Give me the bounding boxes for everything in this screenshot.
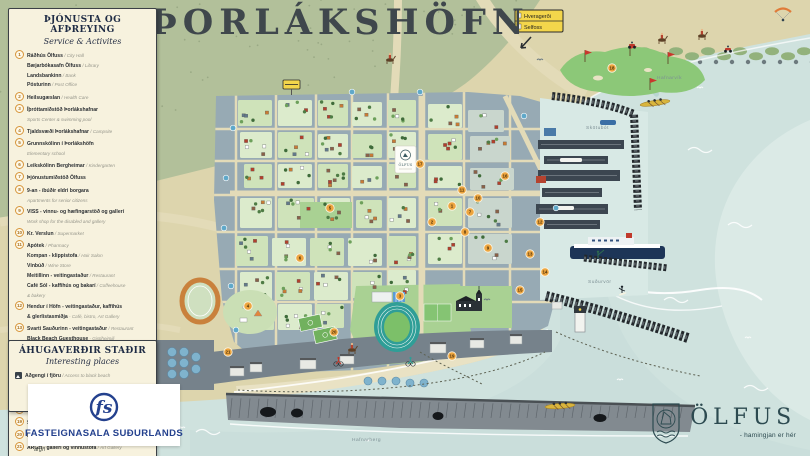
legend-number-badge: 8 xyxy=(15,185,24,194)
legend-text-segment: / Bank xyxy=(62,73,76,78)
number-marker: 6 xyxy=(296,254,304,262)
svg-text:10: 10 xyxy=(476,196,481,201)
legend-line: Sports Center & swimming pool xyxy=(27,114,150,123)
legend-line: Ráðhús Ölfuss / City Hall xyxy=(27,50,150,60)
info-marker xyxy=(228,283,234,289)
legend-number-badge: 21 xyxy=(15,442,24,451)
water-label: Skötubót xyxy=(586,125,609,131)
number-marker: 10 xyxy=(474,194,482,202)
legend-line: & bakery xyxy=(27,290,150,299)
water-label: Suðurvör xyxy=(588,278,611,285)
legend-text-segment: Kompan - klippistofa xyxy=(27,253,77,259)
legend-number-badge: 4 xyxy=(15,126,24,135)
fishing-boat-icon xyxy=(600,120,616,125)
legend-line: Aðgengi í fjöru / Access to black beach xyxy=(25,370,150,380)
legend-line: Elementary school xyxy=(27,148,150,157)
legend-line: Work shop for the disabled and gallery xyxy=(27,216,150,225)
legend-item: 6Leikskólinn Bergheimar / Kindergarten xyxy=(15,160,150,170)
legend-line: VISS - vinnu- og hæfingarstöð og gallerí xyxy=(27,206,150,216)
legend-text-segment: / Hair Salon xyxy=(77,253,102,258)
places-items: Aðgengi í fjöru / Access to black beach xyxy=(15,370,150,380)
legend-item-text: Leikskólinn Bergheimar / Kindergarten xyxy=(27,160,150,170)
legend-text-segment: / Supermarket xyxy=(54,231,84,236)
legend-item-text: Íþróttamiðstöð ÞorlákshafnarSports Cente… xyxy=(27,104,150,123)
svg-text:21: 21 xyxy=(226,350,231,355)
legend-line: Apótek / Pharmacy xyxy=(27,240,150,250)
places-header: ÁHUGAVERÐIR STAÐIR xyxy=(15,346,150,356)
place-item: Aðgengi í fjöru / Access to black beach xyxy=(15,370,150,380)
number-marker: 20 xyxy=(330,328,338,336)
legend-text-segment: / City Hall xyxy=(63,53,84,58)
legend-number-badge: 2 xyxy=(15,92,24,101)
legend-line: Bæjarbókasafn Ölfuss / Library xyxy=(27,60,150,70)
legend-text-segment: Pósturinn xyxy=(27,82,51,88)
legend-text-segment: Ráðhús Ölfuss xyxy=(27,53,63,59)
legend-text-segment: Leikskólinn Bergheimar xyxy=(27,163,85,169)
legend-text-segment: & glerlistasmiðja xyxy=(27,314,68,320)
legend-line: Vínbúð / Wine Store xyxy=(27,260,150,270)
number-marker: 5 xyxy=(326,204,334,212)
legend-item: 10Kr. Verslun / Supermarket xyxy=(15,228,150,238)
legend-text-segment: Íþróttamiðstöð Þorlákshafnar xyxy=(27,107,98,113)
legend-text-segment: / Access to black beach xyxy=(61,373,110,378)
number-marker: 2 xyxy=(428,218,436,226)
legend-number-badge: 3 xyxy=(15,104,24,113)
svg-text:ÖLFUS: ÖLFUS xyxy=(398,162,412,167)
legend-text-segment: Þjónustumiðstöð Ölfuss xyxy=(27,175,86,181)
info-marker xyxy=(553,205,559,211)
legend-text-segment: Hendur í Höfn - veitingastaður, kaffihús xyxy=(27,304,122,310)
places-subheader: Interesting places xyxy=(15,357,150,366)
number-marker: 3 xyxy=(396,292,404,300)
legend-item-text: VISS - vinnu- og hæfingarstöð og gallerí… xyxy=(27,206,150,225)
svg-text:16: 16 xyxy=(503,174,508,179)
town-map-poster: Hveragerði Selfoss ÖLFUS 123456789101112… xyxy=(0,0,810,456)
svg-text:14: 14 xyxy=(543,270,548,275)
legend-number-badge: 12 xyxy=(15,301,24,310)
number-marker: 21 xyxy=(224,348,232,356)
legend-line: Tjaldsvæði Þorlákshafnar / Campsite xyxy=(27,126,150,136)
legend-item: 89-an - íbúðir eldri borgaraApartments f… xyxy=(15,185,150,204)
page-title: ÞORLÁKSHÖFN xyxy=(150,2,530,43)
legend-text-segment: Grunnskólinn í Þorlákshöfn xyxy=(27,141,94,147)
legend-item: 2Heilsugæslan / Health Care xyxy=(15,92,150,102)
legend-item: 1Ráðhús Ölfuss / City HallBæjarbókasafn … xyxy=(15,50,150,90)
fasteignasala-logo: fs FASTEIGNASALA SUÐURLANDS xyxy=(28,384,180,446)
legend-line: Landsbankinn / Bank xyxy=(27,70,150,80)
info-marker xyxy=(223,175,229,181)
legend-item-text: Hendur í Höfn - veitingastaður, kaffihús… xyxy=(27,301,150,321)
legend-text-segment: / Library xyxy=(81,63,99,68)
info-marker xyxy=(230,125,236,131)
info-marker xyxy=(221,225,227,231)
legend-line: Grunnskólinn í Þorlákshöfn xyxy=(27,138,150,148)
legend-text-segment: Elementary school xyxy=(27,151,65,156)
legend-line: Kompan - klippistofa / Hair Salon xyxy=(27,250,150,260)
legend-line: Íþróttamiðstöð Þorlákshafnar xyxy=(27,104,150,114)
legend-text-segment: / Wine Store xyxy=(44,263,71,268)
legend-text-segment: - Café, bistro, Art Gallery xyxy=(68,314,120,319)
legend-line: Svarti Sauðurinn - veitingastaður / Rest… xyxy=(27,323,150,333)
legend-line: Hendur í Höfn - veitingastaður, kaffihús xyxy=(27,301,150,311)
legend-number-badge: 10 xyxy=(15,228,24,237)
legend-line: Meitillinn - veitingastaður / Restaurant xyxy=(27,270,150,280)
svg-text:17: 17 xyxy=(418,162,423,167)
number-marker: 13 xyxy=(526,250,534,258)
legend-item: 12Hendur í Höfn - veitingastaður, kaffih… xyxy=(15,301,150,321)
number-marker: 18 xyxy=(608,64,616,72)
legend-item: 5Grunnskólinn í ÞorlákshöfnElementary sc… xyxy=(15,138,150,157)
legend-item-text: Apótek / PharmacyKompan - klippistofa / … xyxy=(27,240,150,298)
legend-line: Heilsugæslan / Health Care xyxy=(27,92,150,102)
info-marker xyxy=(349,89,355,95)
legend-text-segment: / Post Office xyxy=(51,82,77,87)
legend-text-segment: Tjaldsvæði Þorlákshafnar xyxy=(27,129,89,135)
legend-text-segment: / Coffeehouse xyxy=(96,283,126,288)
legend-text-segment: Landsbankinn xyxy=(27,73,62,79)
football-field xyxy=(424,304,451,321)
legend-text-segment: Apótek xyxy=(27,243,44,249)
fs-monogram-icon: fs xyxy=(86,391,122,425)
olfus-logo: ÖLFUS - hamingjan er hér xyxy=(651,402,796,444)
olfus-plaque: ÖLFUS xyxy=(395,146,416,173)
number-marker: 17 xyxy=(416,160,424,168)
svg-text:fs: fs xyxy=(95,398,113,418)
legend-number-badge: 11 xyxy=(15,240,24,249)
number-marker: 4 xyxy=(244,302,252,310)
svg-text:20: 20 xyxy=(332,330,337,335)
number-marker: 16 xyxy=(501,172,509,180)
olfus-crest-icon xyxy=(651,402,681,444)
legend-text-segment: Café Sól - kaffihús og bakarí xyxy=(27,283,96,289)
legend-line: & glerlistasmiðja - Café, bistro, Art Ga… xyxy=(27,311,150,321)
riding-ring xyxy=(182,280,218,322)
legend-item-text: Grunnskólinn í ÞorlákshöfnElementary sch… xyxy=(27,138,150,157)
legend-text-segment: Aðgengi í fjöru xyxy=(25,373,61,379)
legend-line: Apartments for senior citizens xyxy=(27,195,150,204)
lighthouse-icon xyxy=(574,306,586,332)
fasteignasala-name: FASTEIGNASALA SUÐURLANDS xyxy=(25,428,183,439)
legend-line: Leikskólinn Bergheimar / Kindergarten xyxy=(27,160,150,170)
water-label: Hafnarberg xyxy=(352,437,381,443)
legend-text-segment: Meitillinn - veitingastaður xyxy=(27,273,88,279)
running-track xyxy=(374,302,420,352)
legend-item-text: Þjónustumiðstöð Ölfuss xyxy=(27,172,150,182)
legend-text-segment: Sports Center & swimming pool xyxy=(27,117,91,122)
legend-text-segment: Heilsugæslan xyxy=(27,95,60,101)
number-marker: 1 xyxy=(448,202,456,210)
legend-item: 3Íþróttamiðstöð ÞorlákshafnarSports Cent… xyxy=(15,104,150,123)
legend-text-segment: Apartments for senior citizens xyxy=(27,198,88,203)
legend-line: 9-an - íbúðir eldri borgara xyxy=(27,185,150,195)
legend-text-segment: / Kindergarten xyxy=(85,163,115,168)
legend-text-segment: VISS - vinnu- og hæfingarstöð og gallerí xyxy=(27,209,124,215)
legend-line: Café Sól - kaffihús og bakarí / Coffeeho… xyxy=(27,280,150,290)
place-item-text: Aðgengi í fjöru / Access to black beach xyxy=(25,370,150,380)
legend-text-segment: / Pharmacy xyxy=(44,243,69,248)
legend-number-badge: 19 xyxy=(15,417,24,426)
olfus-tagline: - hamingjan er hér xyxy=(690,432,796,439)
number-marker: 12 xyxy=(536,218,544,226)
legend-text-segment: / Restaurant xyxy=(88,273,114,278)
number-marker: 15 xyxy=(516,286,524,294)
legend-item-text: Heilsugæslan / Health Care xyxy=(27,92,150,102)
water-label: Hafnarvík xyxy=(657,75,682,81)
svg-text:15: 15 xyxy=(518,288,523,293)
warehouse xyxy=(536,176,546,183)
legend-number-badge: 20 xyxy=(15,430,24,439)
legend-text-segment: Kr. Verslun xyxy=(27,231,54,237)
svg-text:19: 19 xyxy=(450,354,455,359)
legend-text-segment: / Art Gallery xyxy=(96,445,121,450)
number-marker: 14 xyxy=(541,268,549,276)
harbor-building xyxy=(544,128,556,136)
legend-number-badge: 5 xyxy=(15,138,24,147)
legend-text-segment: Work shop for the disabled and gallery xyxy=(27,219,105,224)
legend-item-text: Ráðhús Ölfuss / City HallBæjarbókasafn Ö… xyxy=(27,50,150,90)
legend-item: 11Apótek / PharmacyKompan - klippistofa … xyxy=(15,240,150,298)
number-marker: 7 xyxy=(466,208,474,216)
legend-text-segment: Bæjarbókasafn Ölfuss xyxy=(27,63,81,69)
legend-item-text: Tjaldsvæði Þorlákshafnar / Campsite xyxy=(27,126,150,136)
legend-number-badge: 7 xyxy=(15,172,24,181)
legend-number-badge: 1 xyxy=(15,50,24,59)
legend-item-text: Kr. Verslun / Supermarket xyxy=(27,228,150,238)
legend-item-text: 9-an - íbúðir eldri borgaraApartments fo… xyxy=(27,185,150,204)
number-marker: 11 xyxy=(458,186,466,194)
map-credit: argh xyxy=(34,447,45,453)
legend-item: 7Þjónustumiðstöð Ölfuss xyxy=(15,172,150,182)
legend-text-segment: & bakery xyxy=(27,293,45,298)
legend-text-segment: / Health Care xyxy=(60,95,88,100)
svg-text:11: 11 xyxy=(460,188,465,193)
legend-number-badge: 13 xyxy=(15,323,24,332)
legend-text-segment: Vínbúð xyxy=(27,263,44,269)
info-marker xyxy=(233,327,239,333)
number-marker: 8 xyxy=(461,228,469,236)
legend-text-segment: 9-an - íbúðir eldri borgara xyxy=(27,188,89,194)
beach-access-icon xyxy=(15,372,22,379)
legend-line: Pósturinn / Post Office xyxy=(27,79,150,89)
legend-subheader: Service & Activites xyxy=(15,37,150,46)
svg-text:18: 18 xyxy=(610,66,615,71)
svg-text:13: 13 xyxy=(528,252,533,257)
legend-item: 9VISS - vinnu- og hæfingarstöð og galler… xyxy=(15,206,150,225)
olfus-name: ÖLFUS xyxy=(690,407,796,429)
svg-text:12: 12 xyxy=(538,220,543,225)
legend-number-badge: 9 xyxy=(15,206,24,215)
info-marker xyxy=(417,89,423,95)
legend-header: ÞJÓNUSTA OG AFÞREYING xyxy=(15,15,150,36)
number-marker: 19 xyxy=(448,352,456,360)
campsite xyxy=(223,290,277,334)
legend-line: Kr. Verslun / Supermarket xyxy=(27,228,150,238)
legend-text-segment: Svarti Sauðurinn - veitingastaður xyxy=(27,326,107,332)
legend-text-segment: / Campsite xyxy=(89,129,112,134)
legend-number-badge: 6 xyxy=(15,160,24,169)
number-marker: 9 xyxy=(484,244,492,252)
legend-text-segment: / Restaurant xyxy=(107,326,133,331)
legend-line: Þjónustumiðstöð Ölfuss xyxy=(27,172,150,182)
legend-item: 4Tjaldsvæði Þorlákshafnar / Campsite xyxy=(15,126,150,136)
info-marker xyxy=(521,113,527,119)
